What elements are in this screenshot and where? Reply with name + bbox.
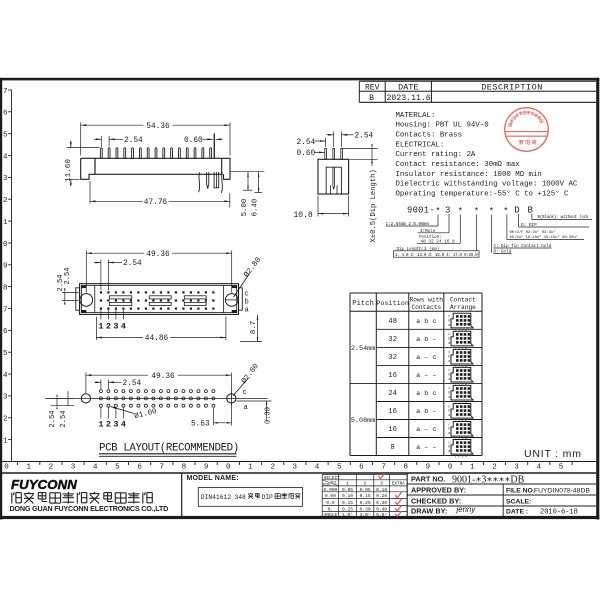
svg-text:3: 3 [380,481,383,487]
svg-text:Arrange: Arrange [450,304,476,311]
svg-text:16: 16 [388,408,397,416]
svg-text:2.54: 2.54 [60,410,68,427]
svg-text:4: 4 [3,153,8,161]
svg-text:1: 1 [26,464,31,472]
svg-text:PCB LAYOUT(RECOMMENDED): PCB LAYOUT(RECOMMENDED) [99,443,239,455]
svg-text:0.60: 0.60 [184,137,203,145]
svg-text:3: 3 [514,464,519,472]
svg-text:a: a [448,431,450,435]
svg-text:DIN41612: DIN41612 [201,494,231,501]
svg-text:0.25: 0.25 [360,500,371,506]
svg-text:1234: 1234 [455,455,469,459]
svg-text:SCALE:: SCALE: [506,498,531,505]
svg-text:B: B [527,206,533,216]
svg-text:3: 3 [3,175,8,183]
svg-text:TOL: TOL [330,481,338,485]
svg-text:4: 4 [93,464,98,472]
svg-text:9: 9 [3,263,8,271]
svg-text:2.54: 2.54 [297,139,316,147]
svg-text:1: 4.0 2: 13.0 3: 15.0 4: 17.0: 1: 4.0 2: 13.0 3: 15.0 4: 17.0 9:25.0 [395,254,478,258]
svg-text:b: b [448,391,450,395]
svg-text:b: b [448,373,450,377]
svg-text:5.0°: 5.0° [376,512,387,518]
svg-text:2.54: 2.54 [123,380,142,388]
svg-text:2.54: 2.54 [64,267,72,284]
svg-text:0: 0 [4,464,9,472]
svg-text:4: 4 [121,322,126,332]
svg-text:Contact resistance: 30mΩ max: Contact resistance: 30mΩ max [396,161,521,169]
svg-text:2: 2 [106,322,111,332]
svg-text:3: 3 [113,322,118,332]
svg-text:Position: Position [376,300,409,308]
svg-text:jenny: jenny [456,505,477,514]
svg-text:Rows with: Rows with [410,297,444,304]
svg-text:b: b [448,409,450,413]
svg-text:ANGLE: ANGLE [324,512,338,518]
svg-text:c: c [448,332,450,336]
svg-text:0.40: 0.40 [376,507,387,513]
svg-text:1: 1 [346,481,349,487]
svg-text:5: 5 [115,464,120,472]
svg-text:54.36: 54.36 [146,123,170,131]
svg-text:Contact: Contact [450,297,476,304]
svg-text:a: a [245,307,250,315]
svg-text:Dielectric withstanding voltag: Dielectric withstanding voltage: 1000V A… [396,181,578,189]
svg-text:0.30: 0.30 [360,507,371,513]
svg-text:1: 1 [470,464,475,472]
svg-text:a: a [244,404,249,412]
svg-text:b: b [448,355,450,359]
svg-text:0.10: 0.10 [342,493,353,499]
svg-text:DIP: DIP [262,494,274,501]
svg-text:2: 2 [3,197,8,205]
svg-text:3: 3 [445,206,450,216]
svg-text:2: 2 [3,416,8,424]
svg-text:0.25: 0.25 [342,507,353,513]
svg-text:b: b [245,298,249,306]
svg-text:MATERLAL:: MATERLAL: [396,112,436,120]
svg-text:CHECKED BY:: CHECKED BY: [411,496,461,505]
svg-text:MODEL NAME:: MODEL NAME: [187,475,239,482]
svg-text:c: c [448,386,450,390]
svg-text:8.7: 8.7 [250,321,258,334]
svg-text:8: 8 [182,464,187,472]
svg-text:1.0°: 1.0° [342,512,353,518]
svg-text:0.30: 0.30 [265,407,273,424]
svg-text:2: 2 [492,464,497,472]
svg-text:X±0.5(Dip Length): X±0.5(Dip Length) [370,169,378,242]
svg-text:Insulator resistance: 1000 MΩ: Insulator resistance: 1000 MΩ min [396,171,542,179]
svg-text:c: c [448,422,450,426]
svg-text:0.000: 0.000 [324,487,338,493]
svg-text:1: 1 [248,464,253,472]
svg-text:6: 6 [137,464,142,472]
svg-text:7: 7 [3,306,8,314]
svg-text:a b c: a b c [416,318,436,326]
svg-text:3:Male: 3:Male [420,229,436,234]
svg-text:a – –: a – – [416,444,436,452]
svg-text:0.60: 0.60 [297,150,316,158]
svg-text:47.76: 47.76 [144,199,168,207]
svg-text:24: 24 [388,390,397,398]
svg-text:5.00: 5.00 [241,199,249,217]
svg-text:6.40: 6.40 [251,199,259,217]
svg-text:c: c [243,389,247,397]
svg-text:0.15: 0.15 [342,500,353,506]
svg-text:2: 2 [270,464,275,472]
svg-text:2.54: 2.54 [123,260,142,268]
svg-text:a: a [448,341,450,345]
svg-text:b: b [448,319,450,323]
svg-text:B: B [369,94,374,103]
svg-text:11.60: 11.60 [65,159,73,182]
svg-text:348: 348 [235,494,247,501]
svg-text:10.8: 10.8 [294,211,313,220]
svg-text:44.86: 44.86 [145,335,169,343]
svg-text:DRAW BY:: DRAW BY: [411,506,447,515]
svg-text:c: c [245,290,249,298]
svg-text:a b –: a b – [416,408,436,416]
svg-text:Pitch: Pitch [352,300,374,308]
svg-text:9001-∗3∗∗∗∗DB: 9001-∗3∗∗∗∗DB [452,474,525,485]
svg-text:0.0: 0.0 [326,500,335,506]
svg-text:3: 3 [113,420,118,430]
svg-text:a: a [448,449,450,453]
svg-text:b: b [448,427,450,431]
svg-text:a – c: a – c [416,426,436,434]
svg-text:49.36: 49.36 [146,251,170,259]
svg-text:49.36: 49.36 [151,373,175,381]
svg-text:b: b [448,445,450,449]
svg-text:6: 6 [3,328,8,336]
svg-text:0.00: 0.00 [325,493,336,499]
svg-text:8: 8 [403,464,408,472]
svg-text:a: a [448,323,450,327]
svg-text:Dip Length:X (mm): Dip Length:X (mm) [397,247,440,252]
svg-text:7: 7 [3,88,8,96]
svg-text:2.54: 2.54 [49,410,57,427]
svg-text:2: 2 [364,481,367,487]
svg-text:ELECTRICAL:: ELECTRICAL: [396,141,445,149]
svg-text:c: c [448,350,450,354]
svg-text:4: 4 [315,464,320,472]
svg-text:16: 16 [388,372,397,380]
svg-text:a: a [448,377,450,381]
svg-text:0: 0 [226,464,231,472]
svg-text:8: 8 [390,444,394,452]
svg-text:2: 2 [106,420,111,430]
svg-text:9: 9 [426,464,431,472]
svg-text:5.63: 5.63 [191,420,210,428]
svg-text:3: 3 [71,464,76,472]
svg-text:2.54: 2.54 [124,137,143,145]
svg-text:9: 9 [204,464,209,472]
svg-text:4: 4 [3,372,8,380]
svg-text:D: DIP: D: DIP [521,223,537,228]
svg-text:0.20: 0.20 [376,493,387,499]
svg-text:a: a [448,395,450,399]
svg-text:B(Blank): without lock: B(Blank): without lock [538,215,590,220]
svg-text:2: 2 [49,464,54,472]
svg-text:c: c [448,404,450,408]
svg-text:DATE: DATE [398,83,418,93]
svg-text:2010-6-18: 2010-6-18 [540,508,578,516]
svg-text:UNIT : mm: UNIT : mm [524,448,582,460]
svg-text:a b –: a b – [416,336,436,344]
svg-text:Current rating: 2A: Current rating: 2A [396,151,476,159]
svg-text:1:2.54mm 2:5.08mm: 1:2.54mm 2:5.08mm [386,222,430,227]
svg-text:2.54: 2.54 [355,133,374,141]
svg-text:a b c: a b c [416,390,436,398]
svg-text:FUYCONN: FUYCONN [11,477,77,492]
svg-text:48: 48 [388,318,397,326]
svg-text:DONG GUAN FUYCONN ELECTRONICS: DONG GUAN FUYCONN ELECTRONICS CO.,LTD [10,504,169,513]
svg-text:6: 6 [3,110,8,118]
svg-text:3.0°: 3.0° [360,512,371,518]
svg-text:0.15: 0.15 [360,493,371,499]
svg-text:a: a [448,359,450,363]
svg-text:PART NO.: PART NO. [411,475,445,484]
svg-text:2023.11.6: 2023.11.6 [387,94,431,103]
svg-text:*: * [503,207,508,217]
svg-text:1: 1 [98,420,103,430]
svg-text:1: 1 [3,219,8,227]
svg-text:5: 5 [3,350,8,358]
svg-text:Contacts: Contacts [411,304,441,311]
svg-text:REV: REV [365,84,380,93]
svg-text:1: 1 [3,437,8,445]
svg-text:0: 0 [448,464,453,472]
svg-text:5: 5 [337,464,342,472]
svg-text:9001-: 9001- [407,206,435,216]
svg-text:Contacts: Brass: Contacts: Brass [396,132,463,140]
svg-text:a – c: a – c [416,354,436,362]
svg-text:1: 1 [98,322,103,332]
svg-text:a: a [448,413,450,417]
svg-text:SELECT: SELECT [324,475,341,481]
svg-text:DESCRIPTION: DESCRIPTION [481,83,543,93]
svg-text:3: 3 [293,464,298,472]
svg-text:DATE :: DATE : [506,509,528,516]
svg-text:3: 3 [3,394,8,402]
svg-text:5: 5 [559,464,564,472]
svg-text:0.: 0. [328,507,334,513]
svg-text:32: 32 [388,336,397,344]
svg-text:6: 6 [359,464,364,472]
svg-text:c: c [448,440,450,444]
svg-text:4: 4 [121,420,126,430]
svg-text:EXTRA: EXTRA [392,482,405,487]
svg-text:DIM: DIM [323,483,331,487]
svg-text:c: c [448,314,450,318]
svg-text:c: c [448,368,450,372]
svg-text:00:G/F 02:2u" 03:3u": 00:G/F 02:2u" 03:3u" [510,230,556,235]
svg-text:0.05: 0.05 [342,487,353,493]
svg-text:0: 0 [3,241,8,249]
svg-text:0.10: 0.10 [376,487,387,493]
svg-text:FILE NO.: FILE NO. [506,487,535,494]
svg-text:b: b [448,337,450,341]
svg-text:Operating temperature:-55° C t: Operating temperature:-55° C to +125° C [396,190,570,199]
svg-text:16: 16 [388,426,397,434]
svg-text:5.08mm: 5.08mm [351,417,375,425]
svg-text:a – –: a – – [416,372,436,380]
svg-text:7: 7 [381,464,386,472]
svg-text:8: 8 [3,284,8,292]
svg-text:5: 5 [3,132,8,140]
svg-text:4: 4 [537,464,542,472]
svg-text:APPROVED BY:: APPROVED BY: [411,485,466,494]
svg-text:0.30: 0.30 [376,500,387,506]
svg-text:Housing: PBT UL 94V-0: Housing: PBT UL 94V-0 [396,122,489,130]
svg-text:7: 7 [160,464,165,472]
svg-text:FUYDIN078-48DB: FUYDIN078-48DB [534,487,590,494]
svg-text:32: 32 [388,354,397,362]
svg-text:2.54mm: 2.54mm [351,345,375,353]
svg-text:0.05: 0.05 [360,487,371,493]
svg-text:48 32 24 16 8: 48 32 24 16 8 [421,240,456,245]
